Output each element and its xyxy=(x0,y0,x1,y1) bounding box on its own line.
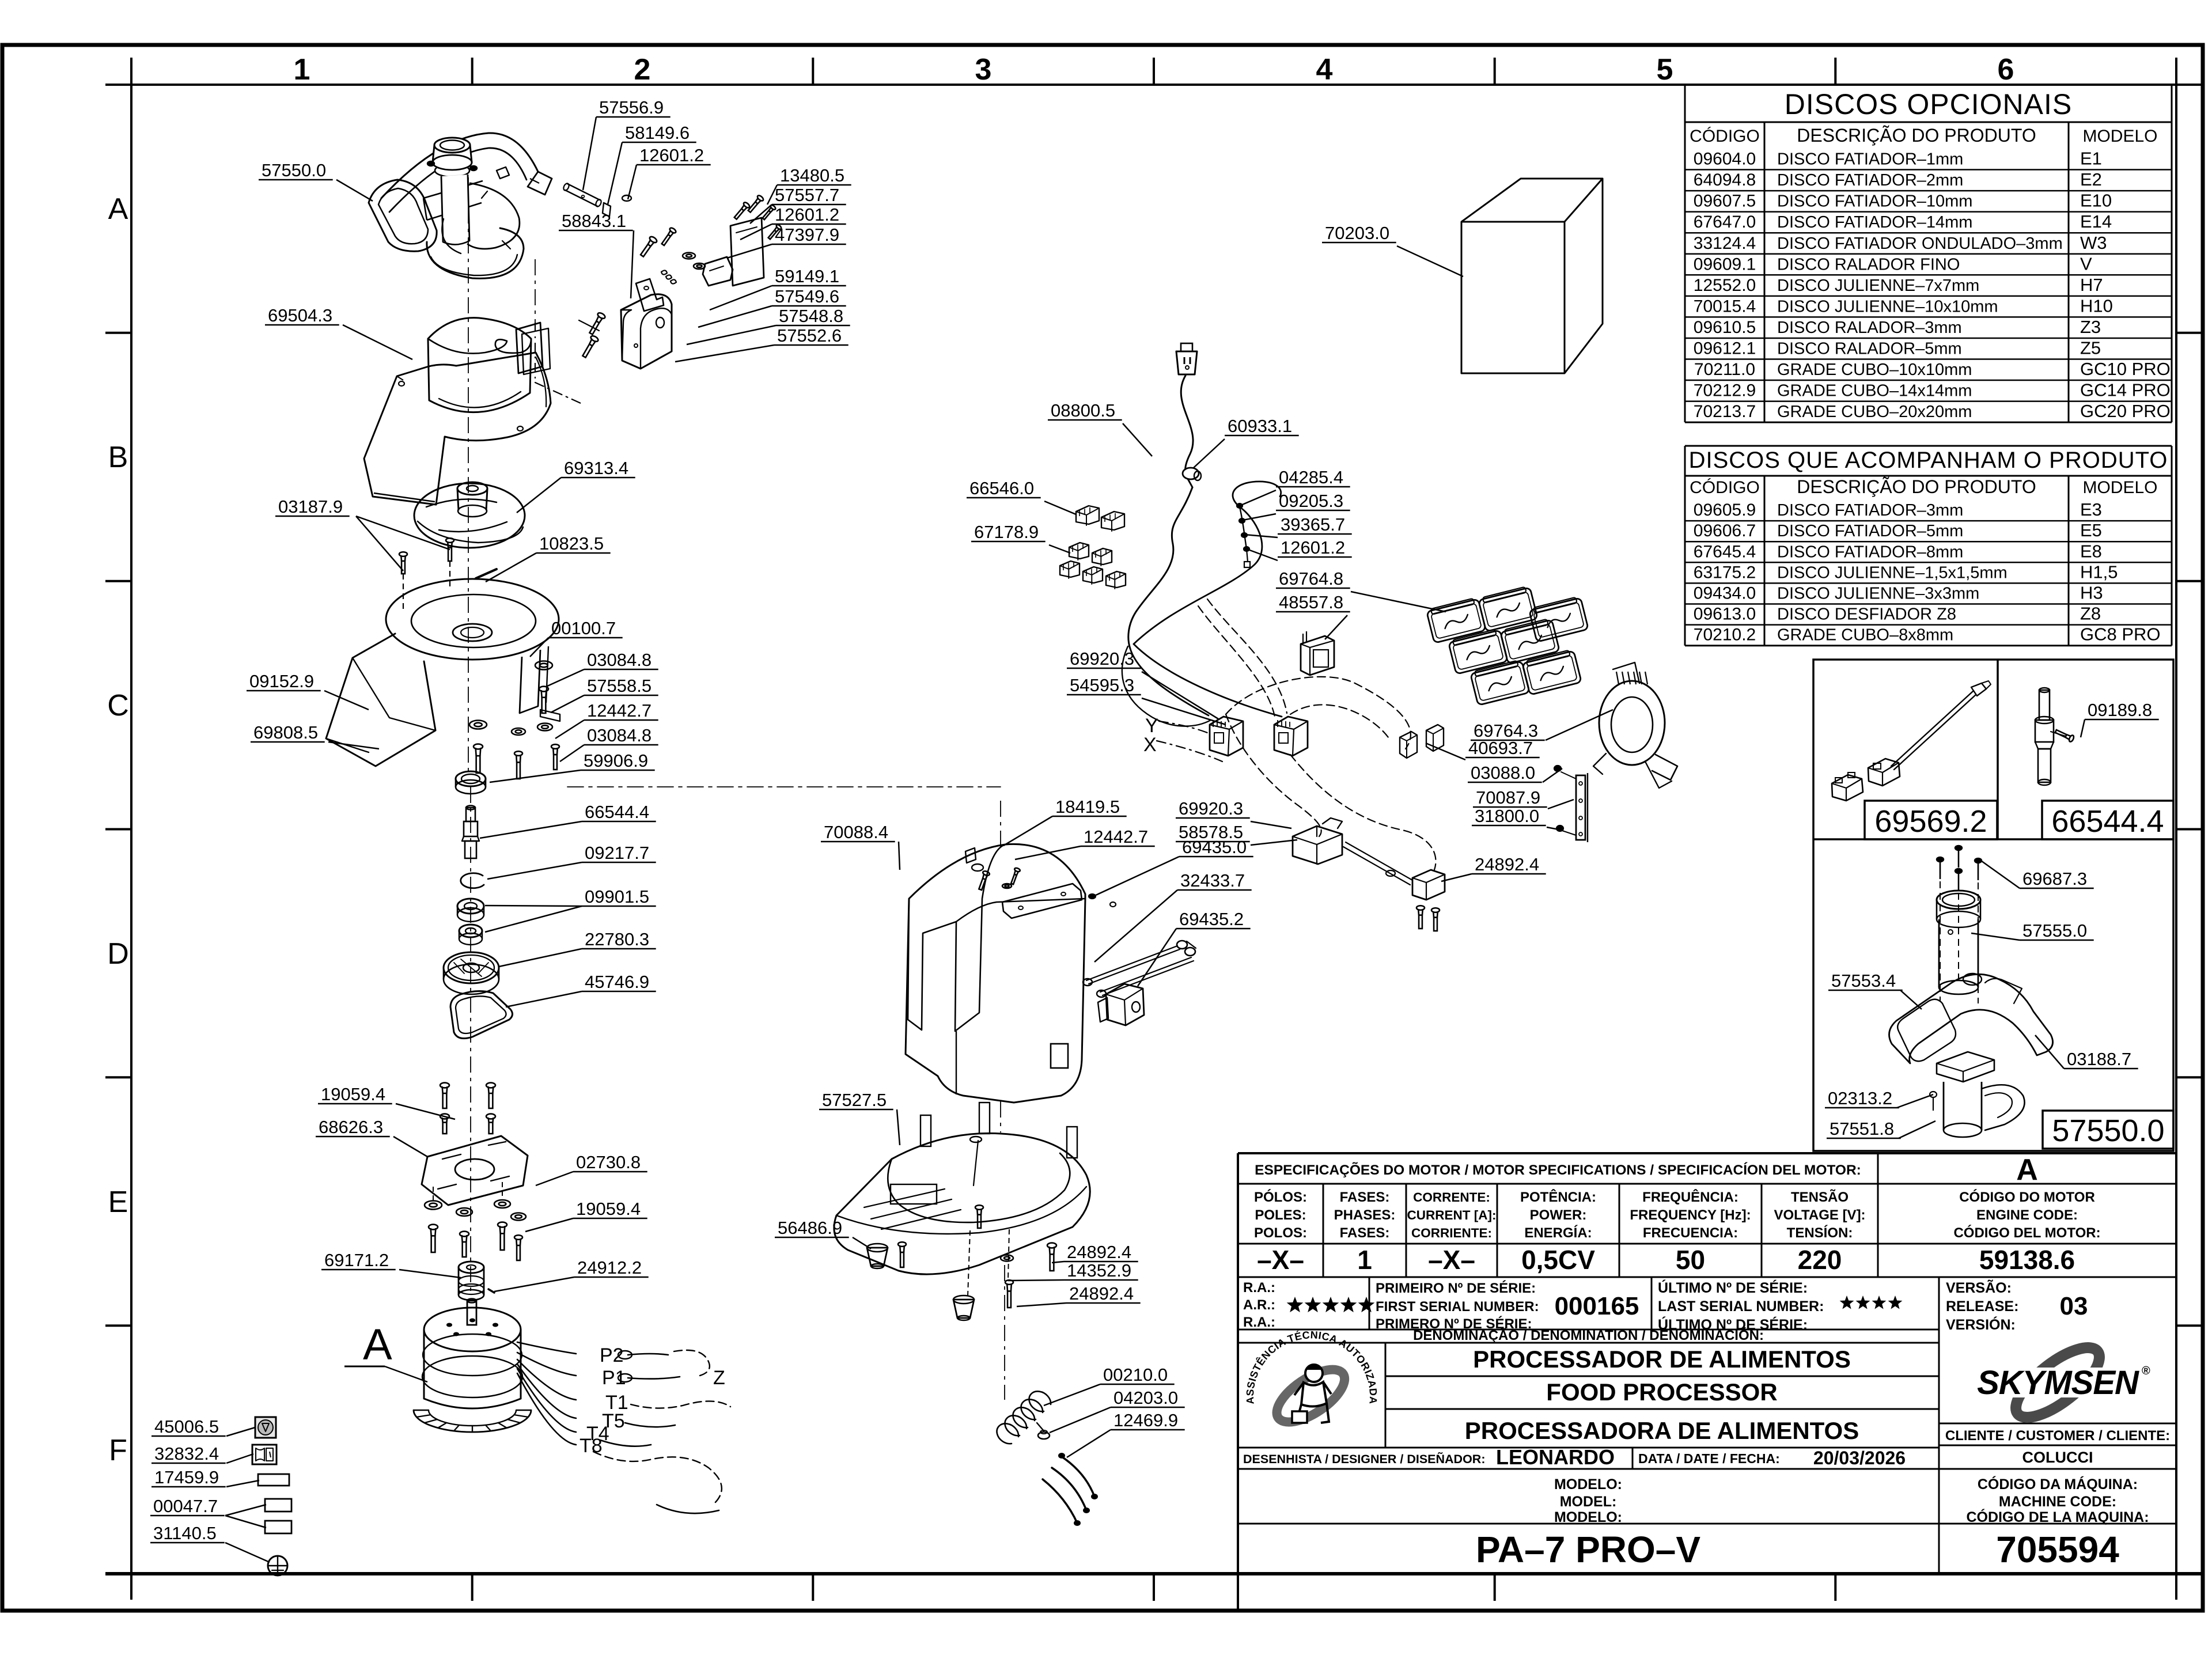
svg-text:10823.5: 10823.5 xyxy=(539,533,604,554)
svg-text:59149.1: 59149.1 xyxy=(775,266,839,286)
svg-text:DISCOS OPCIONAIS: DISCOS OPCIONAIS xyxy=(1785,88,2072,120)
svg-text:Z3: Z3 xyxy=(2080,317,2101,337)
svg-text:A.R.:: A.R.: xyxy=(1243,1297,1275,1313)
svg-text:CÓDIGO DEL MOTOR:: CÓDIGO DEL MOTOR: xyxy=(1953,1225,2100,1241)
svg-text:H3: H3 xyxy=(2080,583,2103,603)
svg-text:PA–7 PRO–V: PA–7 PRO–V xyxy=(1476,1529,1700,1570)
svg-text:VOLTAGE [V]:: VOLTAGE [V]: xyxy=(1774,1207,1865,1223)
svg-text:TENSÃO: TENSÃO xyxy=(1791,1189,1849,1205)
svg-text:09609.1: 09609.1 xyxy=(1694,255,1756,274)
svg-text:14352.9: 14352.9 xyxy=(1067,1260,1131,1281)
svg-text:70087.9: 70087.9 xyxy=(1476,787,1540,808)
svg-text:09189.8: 09189.8 xyxy=(2088,700,2152,720)
svg-text:17459.9: 17459.9 xyxy=(154,1467,219,1487)
svg-text:MACHINE CODE:: MACHINE CODE: xyxy=(1999,1494,2116,1510)
svg-text:66544.4: 66544.4 xyxy=(2051,804,2164,839)
svg-text:22780.3: 22780.3 xyxy=(585,929,649,949)
svg-text:P1: P1 xyxy=(602,1367,626,1389)
svg-text:PHASES:: PHASES: xyxy=(1334,1207,1396,1223)
svg-text:60933.1: 60933.1 xyxy=(1228,416,1292,436)
svg-text:70210.2: 70210.2 xyxy=(1694,626,1756,645)
svg-text:E1: E1 xyxy=(2080,149,2102,169)
svg-text:A: A xyxy=(108,192,128,226)
svg-text:CORRIENTE:: CORRIENTE: xyxy=(1411,1226,1492,1240)
svg-text:67178.9: 67178.9 xyxy=(974,522,1039,542)
svg-text:69171.2: 69171.2 xyxy=(324,1250,389,1270)
svg-text:705594: 705594 xyxy=(1996,1529,2119,1570)
svg-text:DISCO FATIADOR–14mm: DISCO FATIADOR–14mm xyxy=(1777,213,1972,232)
svg-text:57555.0: 57555.0 xyxy=(2022,921,2087,941)
svg-text:DISCO FATIADOR–2mm: DISCO FATIADOR–2mm xyxy=(1777,171,1963,190)
svg-text:70212.9: 70212.9 xyxy=(1694,381,1756,400)
svg-text:POLOS:: POLOS: xyxy=(1254,1225,1307,1241)
svg-text:RELEASE:: RELEASE: xyxy=(1946,1298,2018,1315)
svg-text:FREQUÊNCIA:: FREQUÊNCIA: xyxy=(1642,1189,1738,1205)
svg-text:DISCO DESFIADOR Z8: DISCO DESFIADOR Z8 xyxy=(1777,605,1956,624)
svg-text:1: 1 xyxy=(1357,1245,1372,1275)
svg-text:68626.3: 68626.3 xyxy=(319,1117,383,1137)
svg-text:DATA / DATE / FECHA:: DATA / DATE / FECHA: xyxy=(1638,1451,1780,1466)
svg-text:03088.0: 03088.0 xyxy=(1471,763,1535,783)
svg-text:57550.0: 57550.0 xyxy=(2052,1113,2164,1148)
svg-text:69504.3: 69504.3 xyxy=(268,305,332,325)
svg-text:LAST SERIAL NUMBER:: LAST SERIAL NUMBER: xyxy=(1658,1298,1824,1315)
svg-text:12469.9: 12469.9 xyxy=(1113,1410,1178,1430)
svg-text:32433.7: 32433.7 xyxy=(1180,870,1245,891)
svg-text:SKYMSEN: SKYMSEN xyxy=(1977,1364,2139,1402)
svg-text:W3: W3 xyxy=(2080,233,2107,253)
svg-text:09613.0: 09613.0 xyxy=(1694,605,1756,624)
svg-text:70203.0: 70203.0 xyxy=(1325,223,1389,243)
svg-text:A: A xyxy=(2016,1153,2038,1187)
svg-text:–X–: –X– xyxy=(1257,1245,1304,1275)
svg-text:09217.7: 09217.7 xyxy=(585,843,649,863)
svg-text:TENSÍON:: TENSÍON: xyxy=(1787,1225,1853,1241)
svg-text:GC14 PRO: GC14 PRO xyxy=(2080,380,2171,400)
svg-text:FASES:: FASES: xyxy=(1340,1190,1390,1205)
svg-text:18419.5: 18419.5 xyxy=(1055,797,1120,817)
svg-text:H1,5: H1,5 xyxy=(2080,562,2118,582)
svg-text:CURRENT [A]:: CURRENT [A]: xyxy=(1407,1208,1497,1222)
svg-text:12442.7: 12442.7 xyxy=(1084,827,1148,847)
svg-text:C: C xyxy=(107,689,129,722)
svg-text:57551.8: 57551.8 xyxy=(1830,1119,1894,1139)
svg-text:09605.9: 09605.9 xyxy=(1694,501,1756,520)
svg-text:12601.2: 12601.2 xyxy=(639,145,704,165)
svg-text:DESCRIÇÃO DO PRODUTO: DESCRIÇÃO DO PRODUTO xyxy=(1797,476,2036,497)
svg-text:57558.5: 57558.5 xyxy=(587,676,652,696)
svg-text:58578.5: 58578.5 xyxy=(1179,822,1243,842)
svg-text:DENOMINAÇÃO / DENOMINATION / D: DENOMINAÇÃO / DENOMINATION / DENOMINACIÓ… xyxy=(1413,1327,1764,1343)
svg-text:19059.4: 19059.4 xyxy=(576,1199,641,1219)
svg-text:A: A xyxy=(363,1320,392,1369)
svg-text:09610.5: 09610.5 xyxy=(1694,318,1756,337)
svg-text:69764.8: 69764.8 xyxy=(1279,569,1343,589)
svg-text:57549.6: 57549.6 xyxy=(775,286,839,306)
svg-text:CLIENTE / CUSTOMER / CLIENTE:: CLIENTE / CUSTOMER / CLIENTE: xyxy=(1945,1428,2170,1444)
svg-text:04285.4: 04285.4 xyxy=(1279,467,1343,487)
svg-text:09606.7: 09606.7 xyxy=(1694,521,1756,540)
svg-text:E3: E3 xyxy=(2080,499,2102,520)
svg-text:33124.4: 33124.4 xyxy=(1694,234,1756,253)
svg-text:DISCO JULIENNE–1,5x1,5mm: DISCO JULIENNE–1,5x1,5mm xyxy=(1777,563,2008,582)
svg-text:70088.4: 70088.4 xyxy=(824,822,888,842)
svg-text:20/03/2026: 20/03/2026 xyxy=(1813,1448,1906,1468)
svg-text:57527.5: 57527.5 xyxy=(822,1090,887,1110)
svg-text:24892.4: 24892.4 xyxy=(1067,1242,1131,1262)
svg-text:Z5: Z5 xyxy=(2080,338,2101,358)
svg-text:4: 4 xyxy=(1316,53,1333,86)
svg-text:57556.9: 57556.9 xyxy=(599,97,664,118)
svg-text:03187.9: 03187.9 xyxy=(278,497,343,517)
svg-text:GC8 PRO: GC8 PRO xyxy=(2080,624,2161,645)
svg-text:PRIMEIRO Nº DE SÉRIE:: PRIMEIRO Nº DE SÉRIE: xyxy=(1376,1280,1536,1296)
svg-text:63175.2: 63175.2 xyxy=(1694,563,1756,582)
svg-text:E5: E5 xyxy=(2080,520,2102,540)
svg-text:56486.9: 56486.9 xyxy=(778,1218,842,1238)
svg-text:DISCO JULIENNE–7x7mm: DISCO JULIENNE–7x7mm xyxy=(1777,276,1979,295)
svg-text:DISCO JULIENNE–10x10mm: DISCO JULIENNE–10x10mm xyxy=(1777,297,1998,316)
svg-text:CORRENTE:: CORRENTE: xyxy=(1413,1190,1490,1205)
svg-text:DISCO FATIADOR–3mm: DISCO FATIADOR–3mm xyxy=(1777,501,1963,520)
svg-text:COLUCCI: COLUCCI xyxy=(2022,1449,2093,1466)
svg-text:58843.1: 58843.1 xyxy=(562,211,626,231)
svg-text:47397.9: 47397.9 xyxy=(775,225,839,245)
svg-text:69808.5: 69808.5 xyxy=(253,722,318,743)
svg-text:45746.9: 45746.9 xyxy=(585,972,649,992)
svg-text:®: ® xyxy=(2142,1365,2150,1377)
svg-text:12442.7: 12442.7 xyxy=(587,700,652,721)
svg-text:12552.0: 12552.0 xyxy=(1694,276,1756,295)
svg-text:69687.3: 69687.3 xyxy=(2022,869,2087,889)
svg-text:GRADE CUBO–14x14mm: GRADE CUBO–14x14mm xyxy=(1777,382,1972,400)
svg-text:E8: E8 xyxy=(2080,541,2102,561)
svg-text:DISCO FATIADOR–10mm: DISCO FATIADOR–10mm xyxy=(1777,192,1972,211)
svg-text:09604.0: 09604.0 xyxy=(1694,150,1756,169)
svg-text:DISCO FATIADOR ONDULADO–3mm: DISCO FATIADOR ONDULADO–3mm xyxy=(1777,234,2063,253)
svg-text:31140.5: 31140.5 xyxy=(153,1523,217,1543)
svg-text:–X–: –X– xyxy=(1428,1245,1475,1275)
svg-text:Z: Z xyxy=(713,1367,725,1389)
svg-text:40693.7: 40693.7 xyxy=(1468,738,1533,758)
svg-text:V: V xyxy=(2080,253,2092,274)
svg-text:57553.4: 57553.4 xyxy=(1831,971,1896,991)
svg-text:POTÊNCIA:: POTÊNCIA: xyxy=(1520,1189,1596,1205)
svg-text:VERSIÓN:: VERSIÓN: xyxy=(1946,1316,2016,1333)
svg-text:64094.8: 64094.8 xyxy=(1694,171,1756,190)
svg-text:19059.4: 19059.4 xyxy=(321,1084,385,1104)
svg-text:DISCOS QUE ACOMPANHAM O PR: DISCOS QUE ACOMPANHAM O PRODUTO xyxy=(1689,448,2168,473)
svg-text:09901.5: 09901.5 xyxy=(585,887,649,907)
svg-text:59906.9: 59906.9 xyxy=(584,751,648,771)
svg-text:000165: 000165 xyxy=(1555,1292,1639,1320)
svg-text:FIRST SERIAL NUMBER:: FIRST SERIAL NUMBER: xyxy=(1376,1299,1539,1315)
svg-text:F: F xyxy=(109,1434,127,1467)
svg-text:ENERGÍA:: ENERGÍA: xyxy=(1524,1225,1592,1241)
svg-text:70015.4: 70015.4 xyxy=(1694,297,1756,316)
svg-text:50: 50 xyxy=(1676,1245,1705,1275)
svg-text:CÓDIGO DA MÁQUINA:: CÓDIGO DA MÁQUINA: xyxy=(1978,1475,2138,1493)
svg-text:24912.2: 24912.2 xyxy=(577,1257,642,1278)
svg-text:69920.3: 69920.3 xyxy=(1179,798,1243,819)
svg-text:03188.7: 03188.7 xyxy=(2067,1049,2131,1069)
svg-text:58149.6: 58149.6 xyxy=(625,123,690,143)
svg-text:6: 6 xyxy=(1998,53,2014,86)
svg-text:H10: H10 xyxy=(2080,296,2113,316)
svg-text:FOOD PROCESSOR: FOOD PROCESSOR xyxy=(1546,1378,1777,1406)
svg-text:24892.4: 24892.4 xyxy=(1475,854,1539,874)
svg-text:09205.3: 09205.3 xyxy=(1279,491,1343,511)
svg-text:PÓLOS:: PÓLOS: xyxy=(1254,1189,1307,1205)
svg-text:02313.2: 02313.2 xyxy=(1828,1088,1892,1108)
svg-text:12601.2: 12601.2 xyxy=(1281,537,1345,558)
svg-text:DESENHISTA / DESIGNER / DISEÑA: DESENHISTA / DESIGNER / DISEÑADOR: xyxy=(1243,1452,1486,1466)
svg-text:70213.7: 70213.7 xyxy=(1694,402,1756,421)
svg-text:CÓDIGO DO MOTOR: CÓDIGO DO MOTOR xyxy=(1959,1189,2095,1205)
svg-text:VERSÃO:: VERSÃO: xyxy=(1946,1279,2012,1296)
svg-text:69313.4: 69313.4 xyxy=(564,458,628,478)
svg-text:67647.0: 67647.0 xyxy=(1694,213,1756,232)
svg-text:00100.7: 00100.7 xyxy=(551,618,616,638)
svg-text:ESPECIFICAÇÕES DO MOTOR / MOTO: ESPECIFICAÇÕES DO MOTOR / MOTOR SPECIFIC… xyxy=(1255,1162,1861,1178)
svg-text:1: 1 xyxy=(294,53,310,86)
svg-text:31800.0: 31800.0 xyxy=(1475,806,1539,826)
svg-text:GRADE CUBO–20x20mm: GRADE CUBO–20x20mm xyxy=(1777,403,1972,421)
svg-text:09434.0: 09434.0 xyxy=(1694,584,1756,603)
svg-text:39365.7: 39365.7 xyxy=(1281,514,1345,535)
svg-text:E14: E14 xyxy=(2080,211,2112,232)
svg-text:13480.5: 13480.5 xyxy=(780,165,844,185)
svg-text:Z8: Z8 xyxy=(2080,604,2101,624)
svg-text:69435.2: 69435.2 xyxy=(1179,909,1244,929)
svg-text:32832.4: 32832.4 xyxy=(154,1444,219,1464)
svg-text:E: E xyxy=(108,1185,128,1219)
svg-text:02730.8: 02730.8 xyxy=(576,1152,641,1172)
svg-text:03: 03 xyxy=(2060,1292,2088,1320)
svg-text:03084.8: 03084.8 xyxy=(587,725,652,745)
svg-text:5: 5 xyxy=(1657,53,1673,86)
svg-text:12601.2: 12601.2 xyxy=(775,204,839,225)
svg-text:66544.4: 66544.4 xyxy=(585,802,649,822)
svg-text:24892.4: 24892.4 xyxy=(1069,1283,1134,1304)
svg-text:R.A.:: R.A.: xyxy=(1243,1280,1275,1296)
svg-text:48557.8: 48557.8 xyxy=(1279,592,1343,612)
svg-text:GRADE CUBO–10x10mm: GRADE CUBO–10x10mm xyxy=(1777,361,1972,379)
svg-text:08800.5: 08800.5 xyxy=(1051,400,1115,421)
svg-text:3: 3 xyxy=(975,53,992,86)
svg-text:P2: P2 xyxy=(600,1344,624,1366)
svg-text:DISCO RALADOR FINO: DISCO RALADOR FINO xyxy=(1777,255,1960,274)
svg-text:H7: H7 xyxy=(2080,275,2103,295)
svg-text:0,5CV: 0,5CV xyxy=(1521,1245,1595,1275)
svg-text:MODELO: MODELO xyxy=(2082,478,2157,497)
svg-text:DISCO RALADOR–5mm: DISCO RALADOR–5mm xyxy=(1777,340,1962,358)
svg-text:ENGINE CODE:: ENGINE CODE: xyxy=(1976,1207,2078,1223)
svg-text:GC10 PRO: GC10 PRO xyxy=(2080,359,2171,379)
svg-text:DISCO FATIADOR–5mm: DISCO FATIADOR–5mm xyxy=(1777,522,1963,540)
svg-text:DISCO FATIADOR–1mm: DISCO FATIADOR–1mm xyxy=(1777,150,1963,169)
svg-text:X: X xyxy=(1143,734,1157,756)
svg-text:B: B xyxy=(108,441,128,474)
svg-text:45006.5: 45006.5 xyxy=(154,1416,219,1437)
svg-text:CÓDIGO: CÓDIGO xyxy=(1690,127,1760,146)
svg-text:220: 220 xyxy=(1798,1245,1842,1275)
svg-text:DISCO JULIENNE–3x3mm: DISCO JULIENNE–3x3mm xyxy=(1777,585,1979,603)
svg-text:DISCO RALADOR–3mm: DISCO RALADOR–3mm xyxy=(1777,319,1962,337)
svg-text:70211.0: 70211.0 xyxy=(1694,360,1755,379)
svg-text:00210.0: 00210.0 xyxy=(1103,1365,1168,1385)
svg-text:GC20 PRO: GC20 PRO xyxy=(2080,401,2171,421)
svg-text:MODEL:: MODEL: xyxy=(1560,1494,1617,1510)
svg-text:ÚLTIMO Nº DE SÉRIE:: ÚLTIMO Nº DE SÉRIE: xyxy=(1658,1279,1808,1296)
svg-text:MODELO: MODELO xyxy=(2082,127,2157,146)
svg-text:CÓDIGO DE LA MAQUINA:: CÓDIGO DE LA MAQUINA: xyxy=(1966,1508,2149,1525)
svg-text:LEONARDO: LEONARDO xyxy=(1496,1445,1615,1469)
svg-text:CÓDIGO: CÓDIGO xyxy=(1690,478,1760,497)
svg-text:PROCESSADOR DE ALIMENTOS: PROCESSADOR DE ALIMENTOS xyxy=(1473,1346,1851,1373)
svg-text:MODELO:: MODELO: xyxy=(1554,1476,1622,1493)
svg-text:09152.9: 09152.9 xyxy=(249,671,314,691)
svg-text:DESCRIÇÃO DO PRODUTO: DESCRIÇÃO DO PRODUTO xyxy=(1797,125,2036,146)
svg-text:DISCO FATIADOR–8mm: DISCO FATIADOR–8mm xyxy=(1777,543,1963,561)
svg-text:59138.6: 59138.6 xyxy=(1979,1245,2075,1275)
svg-text:69920.3: 69920.3 xyxy=(1070,649,1134,669)
svg-text:FRECUENCIA:: FRECUENCIA: xyxy=(1643,1225,1738,1241)
svg-text:04203.0: 04203.0 xyxy=(1113,1388,1178,1408)
svg-text:00047.7: 00047.7 xyxy=(153,1496,218,1516)
svg-text:FREQUENCY [Hz]:: FREQUENCY [Hz]: xyxy=(1630,1207,1751,1223)
svg-text:09607.5: 09607.5 xyxy=(1694,192,1756,211)
svg-text:57550.0: 57550.0 xyxy=(262,160,326,180)
svg-text:66546.0: 66546.0 xyxy=(969,478,1034,498)
svg-text:E10: E10 xyxy=(2080,191,2112,211)
svg-text:57548.8: 57548.8 xyxy=(779,306,843,326)
svg-text:69569.2: 69569.2 xyxy=(1874,804,1987,839)
svg-text:PROCESSADORA DE ALIMENTOS: PROCESSADORA DE ALIMENTOS xyxy=(1465,1417,1859,1444)
svg-text:R.A.:: R.A.: xyxy=(1243,1315,1275,1330)
svg-text:57557.7: 57557.7 xyxy=(775,185,839,205)
svg-text:POWER:: POWER: xyxy=(1530,1207,1587,1223)
svg-text:MODELO:: MODELO: xyxy=(1554,1509,1622,1525)
svg-text:D: D xyxy=(107,937,129,971)
svg-text:09612.1: 09612.1 xyxy=(1694,339,1756,358)
svg-text:E2: E2 xyxy=(2080,169,2102,190)
svg-text:FASES:: FASES: xyxy=(1340,1225,1390,1241)
svg-text:67645.4: 67645.4 xyxy=(1694,542,1756,561)
svg-text:57552.6: 57552.6 xyxy=(777,325,842,346)
svg-text:GRADE CUBO–8x8mm: GRADE CUBO–8x8mm xyxy=(1777,626,1953,645)
svg-text:POLES:: POLES: xyxy=(1255,1207,1306,1223)
svg-text:2: 2 xyxy=(634,53,651,86)
svg-text:03084.8: 03084.8 xyxy=(587,650,652,670)
